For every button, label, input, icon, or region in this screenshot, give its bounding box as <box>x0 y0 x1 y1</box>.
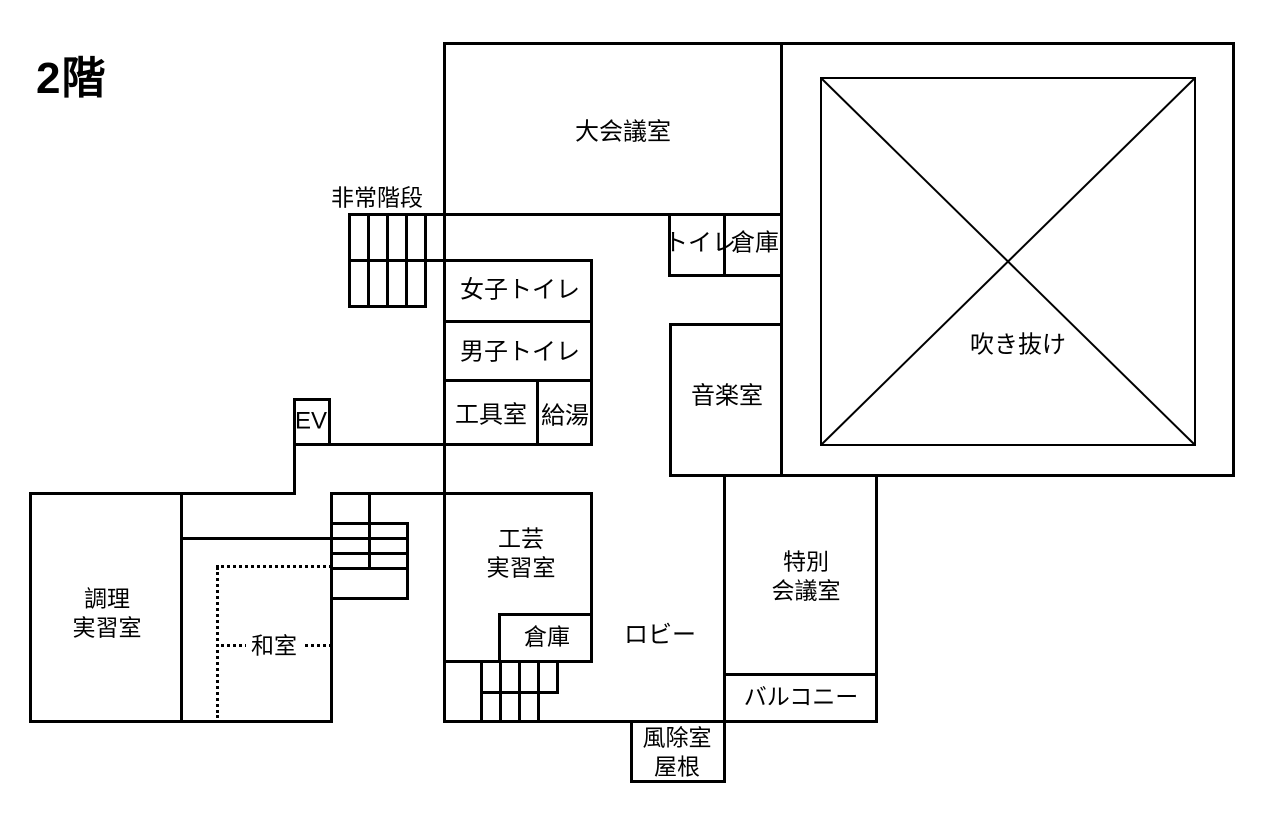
room-label-tool-room: 工具室 <box>455 401 527 432</box>
wall-segment <box>443 42 446 723</box>
room-label-emergency-stairs: 非常階段 <box>331 183 423 212</box>
atrium-void-square <box>820 77 1196 446</box>
wall-segment <box>293 398 331 401</box>
room-label-atrium: 吹き抜け <box>970 331 1066 362</box>
wall-segment <box>386 213 389 308</box>
wall-segment <box>556 660 559 694</box>
wall-segment <box>180 537 408 540</box>
wall-segment <box>537 660 540 723</box>
room-label-toilet: トイレ <box>664 229 736 260</box>
wall-segment <box>348 259 593 262</box>
wall-segment <box>29 492 294 495</box>
wall-segment <box>405 213 408 308</box>
wall-segment <box>669 323 783 326</box>
room-label-storage-lower: 倉庫 <box>524 622 570 651</box>
wall-segment <box>348 213 351 308</box>
wall-segment <box>518 660 521 723</box>
room-label-craft-practice-room: 工芸 実習室 <box>487 525 556 584</box>
wall-segment <box>368 492 371 570</box>
dotted-partition-line <box>216 565 332 568</box>
floor-plan-canvas: 2階 非常階段大会議室トイレ倉庫吹き抜け女子トイレ男子トイレ工具室給湯EV音楽室… <box>0 0 1270 814</box>
wall-segment <box>590 492 593 663</box>
wall-segment <box>406 522 409 600</box>
wall-segment <box>367 213 370 308</box>
room-label-elevator: EV <box>295 407 327 438</box>
room-label-japanese-room: 和室 <box>246 631 302 660</box>
wall-segment <box>536 379 539 446</box>
room-label-womens-toilet: 女子トイレ <box>460 276 580 307</box>
wall-segment <box>480 660 483 723</box>
wall-segment <box>590 259 593 446</box>
wall-segment <box>443 320 593 323</box>
wall-segment <box>180 492 183 723</box>
wall-segment <box>669 474 1235 477</box>
wall-segment <box>498 613 593 616</box>
wall-segment <box>875 474 878 723</box>
wall-segment <box>669 323 672 477</box>
room-label-music-room: 音楽室 <box>691 382 763 413</box>
wall-segment <box>443 720 878 723</box>
room-label-windbreak-room-roof: 風除室 屋根 <box>643 724 712 783</box>
wall-segment <box>723 720 726 783</box>
wall-segment <box>723 474 726 723</box>
room-label-balcony: バルコニー <box>744 682 859 711</box>
wall-segment <box>330 492 333 723</box>
wall-segment <box>424 213 427 308</box>
wall-segment <box>780 42 783 477</box>
wall-segment <box>630 720 633 783</box>
wall-segment <box>29 492 32 723</box>
room-label-special-conference-room: 特別 会議室 <box>772 548 841 607</box>
room-label-lobby: ロビー <box>624 621 696 652</box>
room-label-cooking-practice-room: 調理 実習室 <box>73 585 142 644</box>
dotted-partition-line <box>216 567 219 718</box>
room-label-storage-upper: 倉庫 <box>731 229 779 260</box>
wall-segment <box>328 398 331 446</box>
room-label-large-conference-room: 大会議室 <box>575 118 671 149</box>
wall-segment <box>498 613 501 663</box>
wall-segment <box>1232 42 1235 477</box>
wall-segment <box>348 213 782 216</box>
wall-segment <box>443 379 593 382</box>
floor-title: 2階 <box>36 42 106 106</box>
wall-segment <box>499 660 502 723</box>
wall-segment <box>723 673 878 676</box>
room-label-mens-toilet: 男子トイレ <box>460 338 580 369</box>
room-label-hot-water: 給湯 <box>541 402 589 433</box>
wall-segment <box>330 597 408 600</box>
wall-segment <box>443 42 1233 45</box>
